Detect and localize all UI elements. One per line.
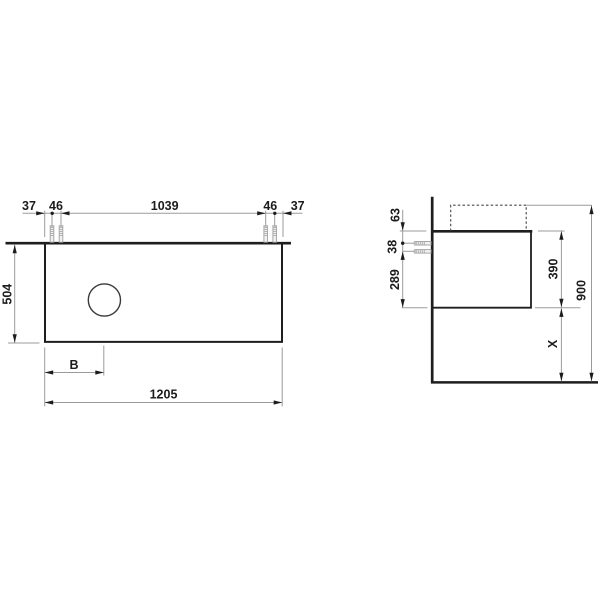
svg-text:504: 504 [1,284,15,305]
svg-text:63: 63 [388,208,402,222]
svg-text:46: 46 [263,199,277,213]
svg-text:37: 37 [291,199,305,213]
svg-text:390: 390 [547,259,561,280]
svg-text:289: 289 [388,269,402,290]
svg-text:1039: 1039 [151,199,179,213]
svg-text:37: 37 [22,199,36,213]
svg-text:B: B [69,358,78,372]
svg-text:X: X [546,339,560,348]
svg-text:1205: 1205 [150,387,178,401]
svg-text:46: 46 [49,199,63,213]
svg-text:38: 38 [385,240,399,254]
svg-text:900: 900 [575,280,589,301]
